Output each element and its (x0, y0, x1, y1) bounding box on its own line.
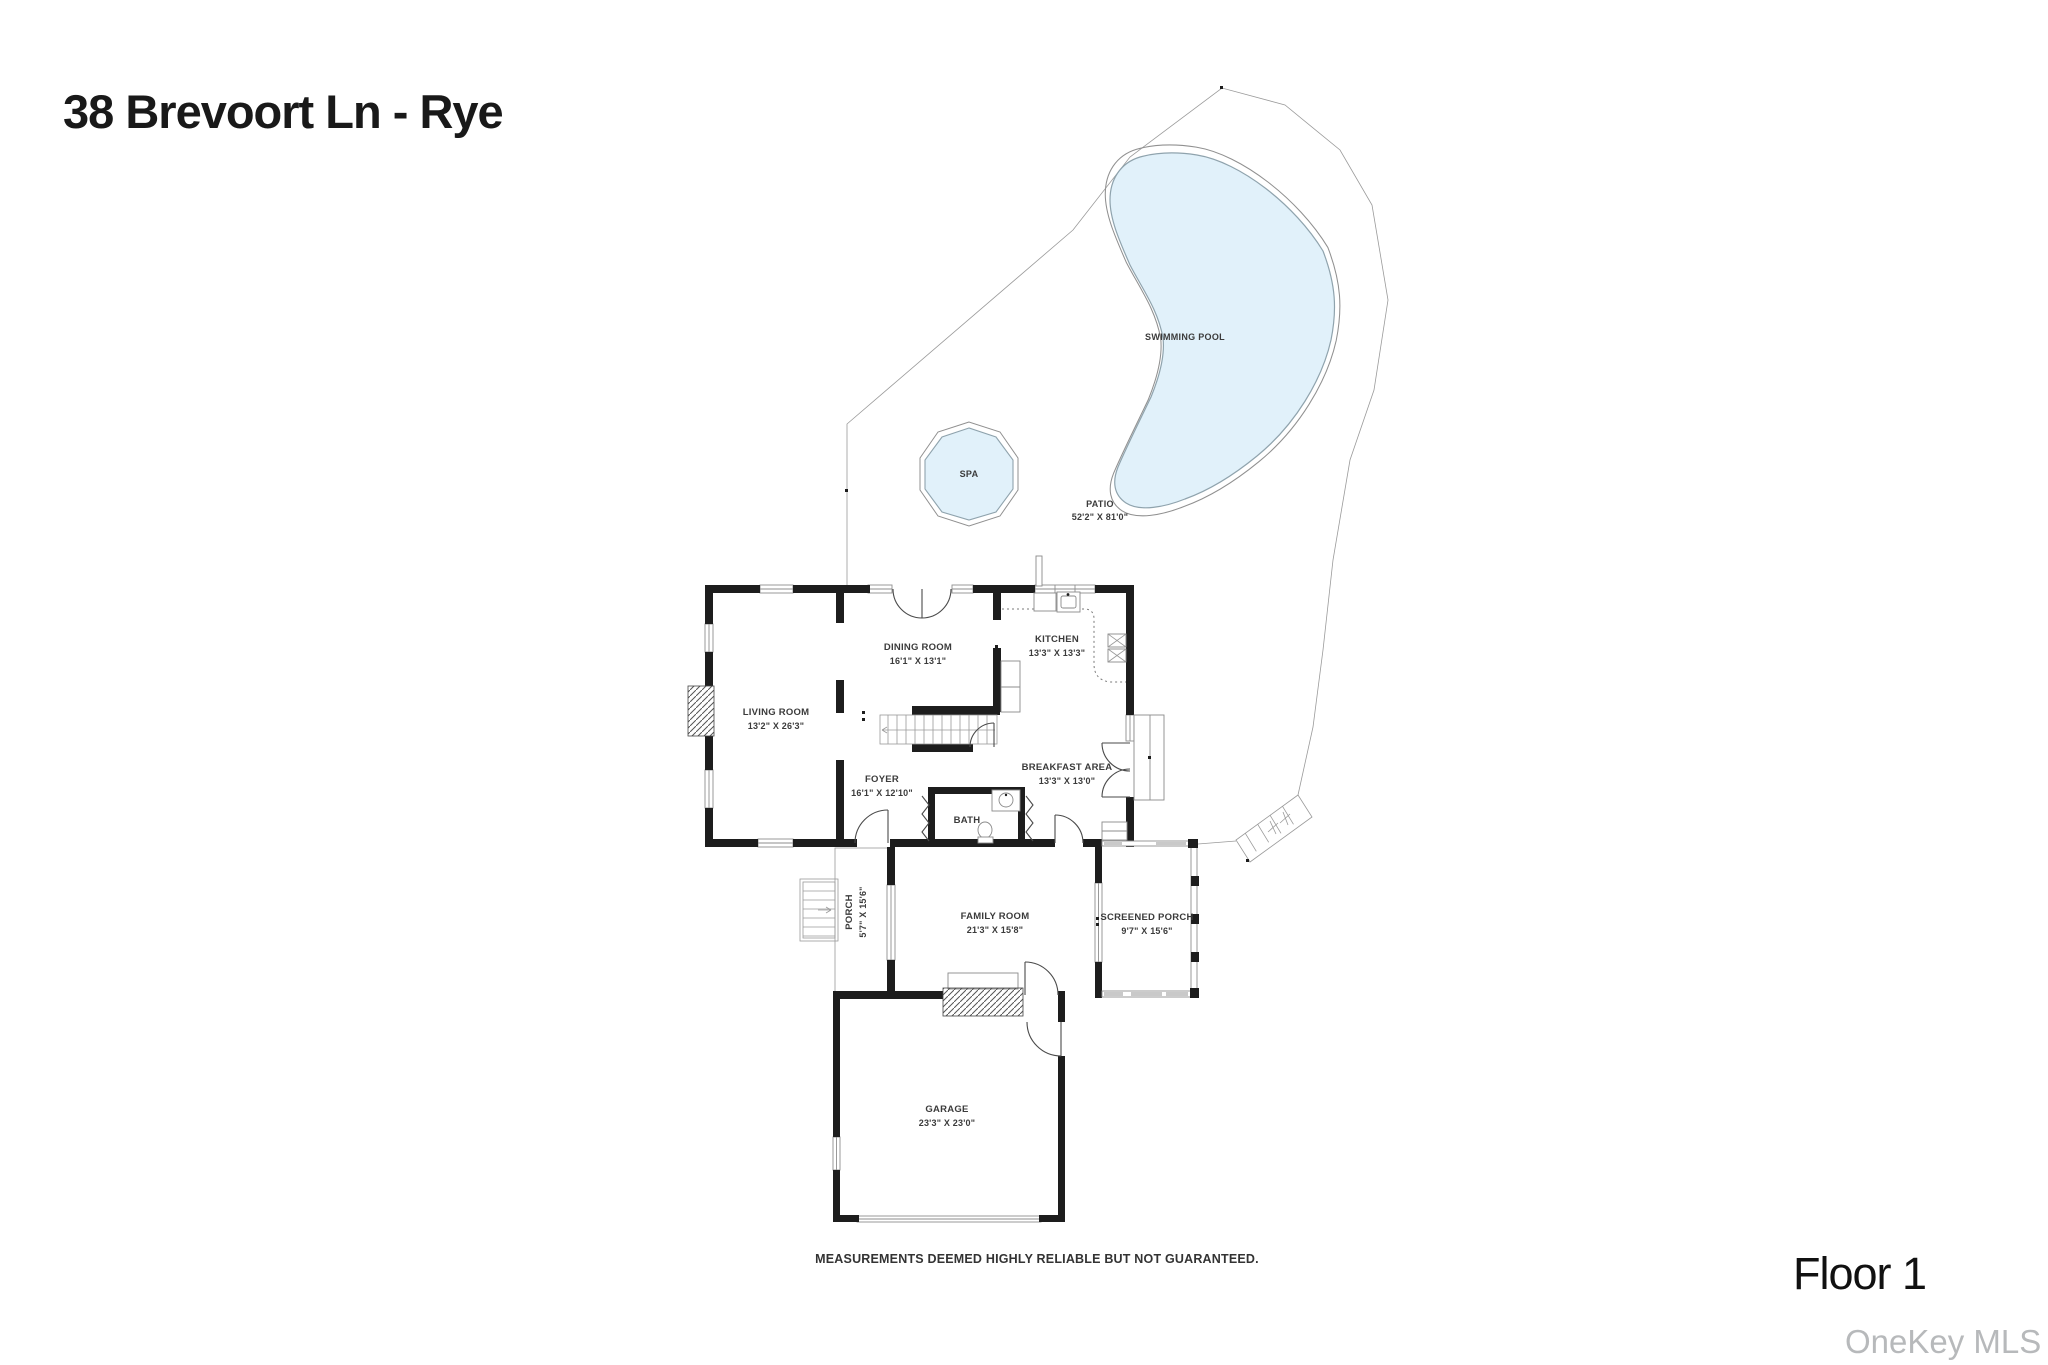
kitchen-label: KITCHEN (1035, 634, 1079, 645)
screened-porch-label: SCREENED PORCH (1100, 912, 1193, 923)
garage-label: GARAGE (925, 1104, 968, 1115)
living-room-label: LIVING ROOM (743, 707, 810, 718)
dining-room-label: DINING ROOM (884, 642, 952, 653)
floor-label: Floor 1 (1793, 1248, 1926, 1299)
kitchen-dimensions: 13'3" X 13'3" (1029, 648, 1085, 658)
breakfast-area-label: BREAKFAST AREA (1022, 762, 1113, 773)
floorplan-page: 38 Brevoort Ln - Rye Floor 1 OneKey MLS … (0, 0, 2048, 1365)
outdoor-steps (1236, 795, 1312, 862)
porch-label: PORCH (844, 894, 855, 930)
spa-label: SPA (960, 469, 979, 479)
living-room-fireplace (688, 686, 714, 736)
garage-fixtures (833, 1137, 1041, 1222)
swimming-pool-label: SWIMMING POOL (1145, 332, 1225, 342)
garage-dimensions: 23'3" X 23'0" (919, 1118, 975, 1128)
bath-label: BATH (954, 815, 981, 826)
swimming-pool-shape (1105, 145, 1340, 516)
staircase (880, 715, 997, 744)
disclaimer-text: MEASUREMENTS DEEMED HIGHLY RELIABLE BUT … (815, 1252, 1259, 1266)
screened-porch-dimensions: 9'7" X 15'6" (1121, 926, 1172, 936)
foyer-label: FOYER (865, 774, 899, 785)
dining-room-dimensions: 16'1" X 13'1" (890, 656, 946, 666)
patio-label: PATIO (1086, 499, 1114, 509)
porch-dimensions: 5'7" X 15'6" (858, 886, 868, 937)
family-room-dimensions: 21'3" X 15'8" (967, 925, 1023, 935)
mls-watermark: OneKey MLS (1845, 1323, 2041, 1360)
screened-porch-structure (1102, 822, 1199, 998)
breakfast-area-dimensions: 13'3" X 13'0" (1039, 776, 1095, 786)
family-room-fireplace (943, 973, 1023, 1016)
foyer-dimensions: 16'1" X 12'10" (851, 788, 913, 798)
family-room-label: FAMILY ROOM (961, 911, 1030, 922)
patio-dimensions: 52'2" X 81'0" (1072, 512, 1128, 522)
living-room-dimensions: 13'2" X 26'3" (748, 721, 804, 731)
floorplan-drawing: 38 Brevoort Ln - Rye Floor 1 OneKey MLS … (0, 0, 2048, 1365)
plan-title: 38 Brevoort Ln - Rye (63, 85, 503, 138)
